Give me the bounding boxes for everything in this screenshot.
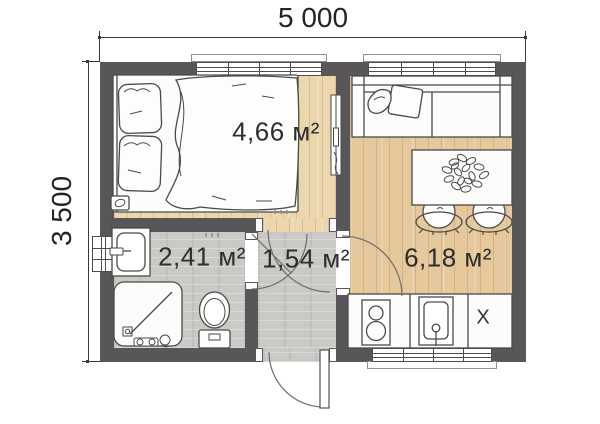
- dining-table-icon: [412, 150, 512, 205]
- kitchen-door-icon: [342, 236, 402, 296]
- toilet-icon: [199, 292, 230, 348]
- x-mark-label: X: [476, 307, 489, 330]
- bathroom-area-label: 2,41 м²: [158, 242, 246, 273]
- bedroom-area-label: 4,66 м²: [232, 117, 320, 148]
- furniture-layer: [0, 0, 600, 424]
- shower-icon: [114, 282, 182, 347]
- pillow-icon: [118, 83, 162, 133]
- kitchen-area-label: 6,18 м²: [404, 243, 492, 274]
- pillow-icon: [118, 135, 162, 191]
- bathroom-vanity-icon: [110, 228, 150, 276]
- wall-panel-icon: [331, 95, 341, 175]
- kitchen-sink-icon: [419, 297, 453, 346]
- floor-plan: 5 000 3 500: [0, 0, 600, 424]
- stove-icon: [362, 300, 390, 345]
- hallway-area-label: 1,54 м²: [262, 244, 350, 275]
- sofa-icon: [352, 76, 512, 137]
- entrance-door-icon: [269, 350, 329, 408]
- pillow-icon: [388, 85, 423, 118]
- bedside-slippers-icon: [111, 196, 129, 210]
